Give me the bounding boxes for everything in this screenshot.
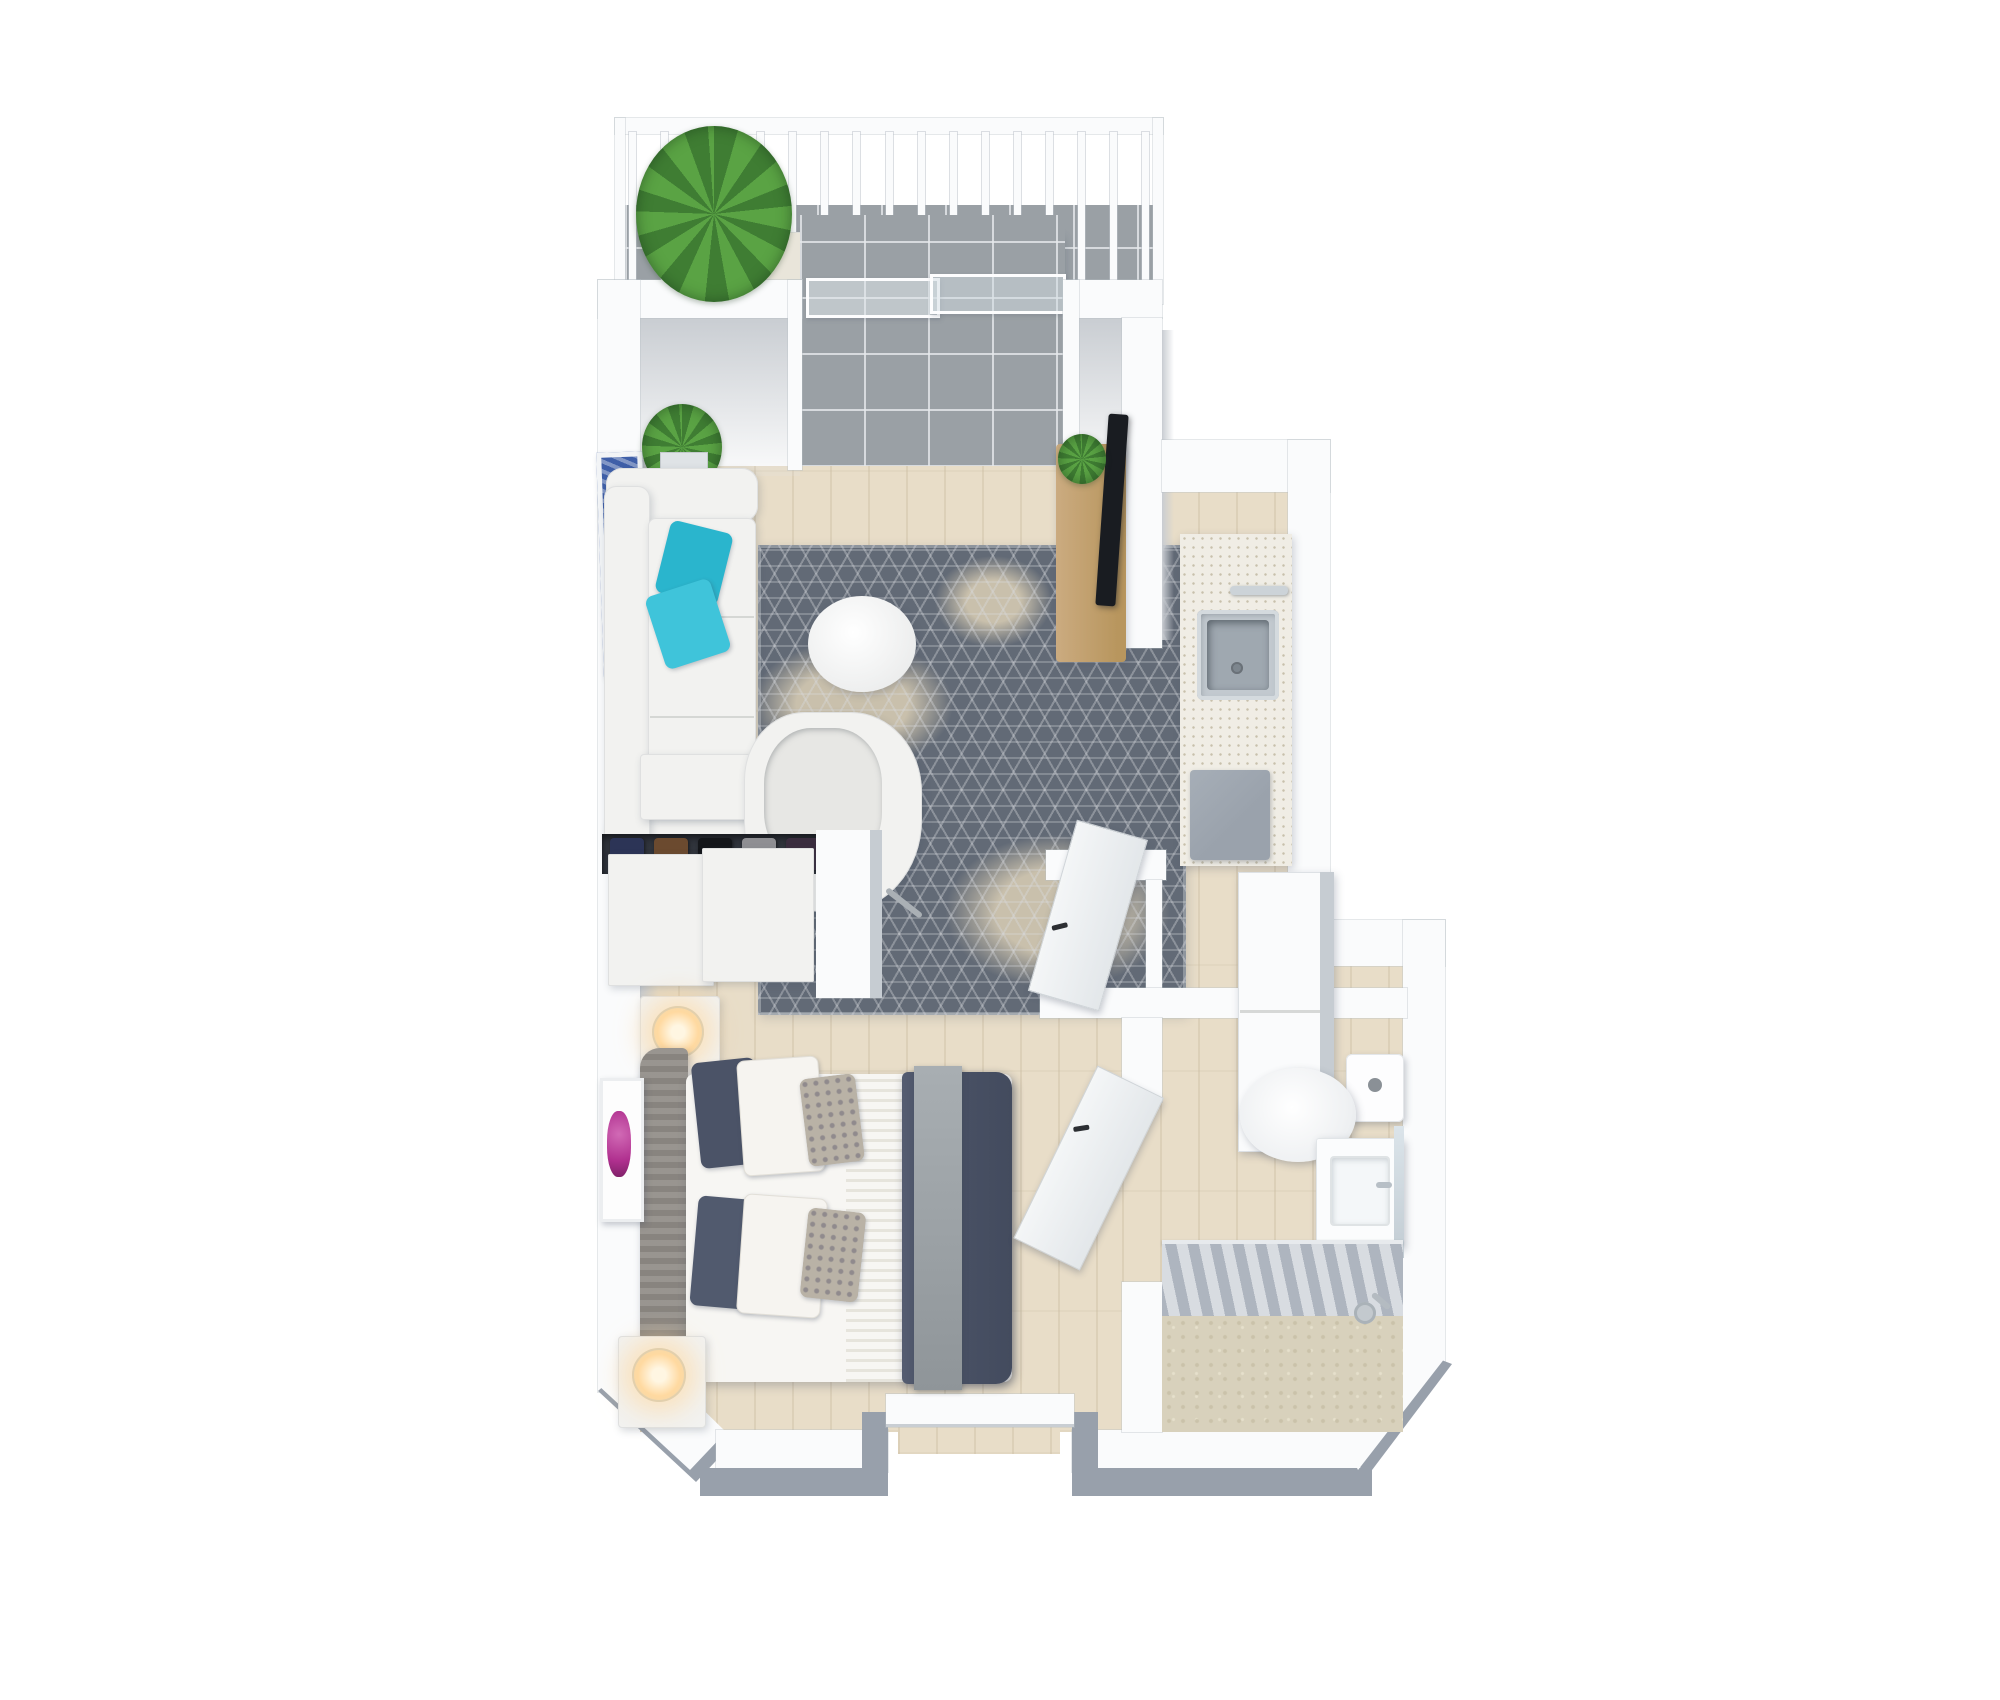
wall-divider-living-kitchen — [1122, 318, 1162, 648]
railing-baluster — [1078, 132, 1085, 304]
coffee-table — [808, 596, 916, 692]
closet-side-column — [816, 830, 882, 998]
kitchen-cooktop — [1190, 770, 1270, 860]
bathroom-mirror — [1394, 1126, 1404, 1258]
railing-right-post — [1153, 118, 1163, 304]
entry-door-header — [886, 1394, 1074, 1427]
closet — [596, 830, 882, 998]
bed-throw-gray — [914, 1066, 962, 1390]
entry-jamb-right — [1072, 1412, 1098, 1496]
railing-left-post — [615, 118, 625, 304]
bed-pillow-accent-2 — [799, 1207, 866, 1303]
railing-baluster — [629, 132, 636, 304]
bed-pillow-accent-1 — [799, 1073, 865, 1167]
railing-baluster — [1110, 132, 1117, 304]
bed-headboard — [640, 1048, 688, 1354]
kitchen-faucet — [1230, 586, 1288, 595]
wall-bathroom-right — [1403, 920, 1445, 1362]
closet-sliding-door-1 — [608, 854, 714, 986]
closet-sliding-door-2 — [702, 848, 814, 982]
bathroom-vanity — [1316, 1138, 1404, 1248]
glass-pane-right — [930, 274, 1066, 314]
floor-plan-scene — [0, 0, 2000, 1700]
sliding-glass-door — [802, 274, 1064, 314]
wall-bathroom-left-lower — [1122, 1282, 1162, 1432]
cabinet-seam — [1240, 1010, 1320, 1013]
shower-fixture — [1352, 1296, 1396, 1352]
bathroom-door-handle — [1073, 1125, 1090, 1132]
balcony-plant — [636, 126, 792, 302]
wall-bottom-outer-edge-left — [700, 1468, 888, 1496]
toilet-flush-button — [1368, 1078, 1382, 1092]
glass-pane-left — [806, 278, 940, 318]
kitchen-sink — [1197, 610, 1279, 700]
wall-art-floral — [600, 1078, 644, 1222]
tv-plant — [1058, 434, 1106, 484]
nightstand-bottom-lamp — [632, 1348, 686, 1402]
balcony-door-recess — [800, 215, 1065, 467]
entry-jamb-left — [862, 1412, 888, 1496]
railing-baluster — [1142, 132, 1149, 304]
sink-basin — [1207, 620, 1269, 690]
floral-art-bloom — [607, 1111, 631, 1177]
wall-bottom-outer-edge-right — [1072, 1468, 1372, 1496]
hall-door-handle — [1051, 922, 1068, 931]
vanity-sink — [1330, 1156, 1390, 1226]
wall-bottom-right-segment — [1072, 1430, 1364, 1472]
bed — [640, 1048, 1012, 1384]
sofa-cushion-seam-2 — [650, 716, 754, 718]
shower-valve — [1354, 1302, 1376, 1324]
wall-hall-stub — [1146, 880, 1162, 990]
vanity-faucet — [1376, 1182, 1392, 1188]
tub-chair-leg — [885, 887, 923, 919]
sink-drain — [1231, 662, 1243, 674]
door-recess-jamb-left — [788, 280, 802, 470]
